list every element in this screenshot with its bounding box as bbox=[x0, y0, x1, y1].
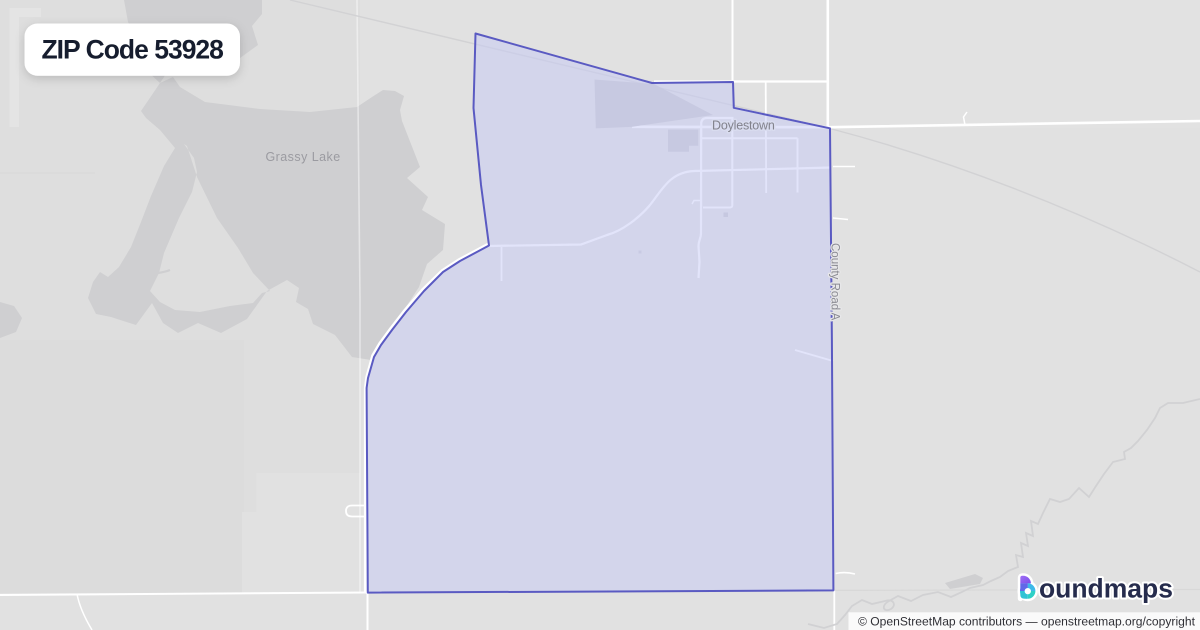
svg-text:County Road A: County Road A bbox=[829, 243, 841, 321]
svg-text:Grassy Lake: Grassy Lake bbox=[266, 150, 341, 164]
svg-text:oundmaps: oundmaps bbox=[1039, 574, 1173, 604]
svg-text:Doylestown: Doylestown bbox=[712, 119, 775, 133]
svg-text:ZIP Code 53928: ZIP Code 53928 bbox=[42, 35, 224, 65]
svg-text:© OpenStreetMap contributors —: © OpenStreetMap contributors — openstree… bbox=[858, 615, 1196, 629]
